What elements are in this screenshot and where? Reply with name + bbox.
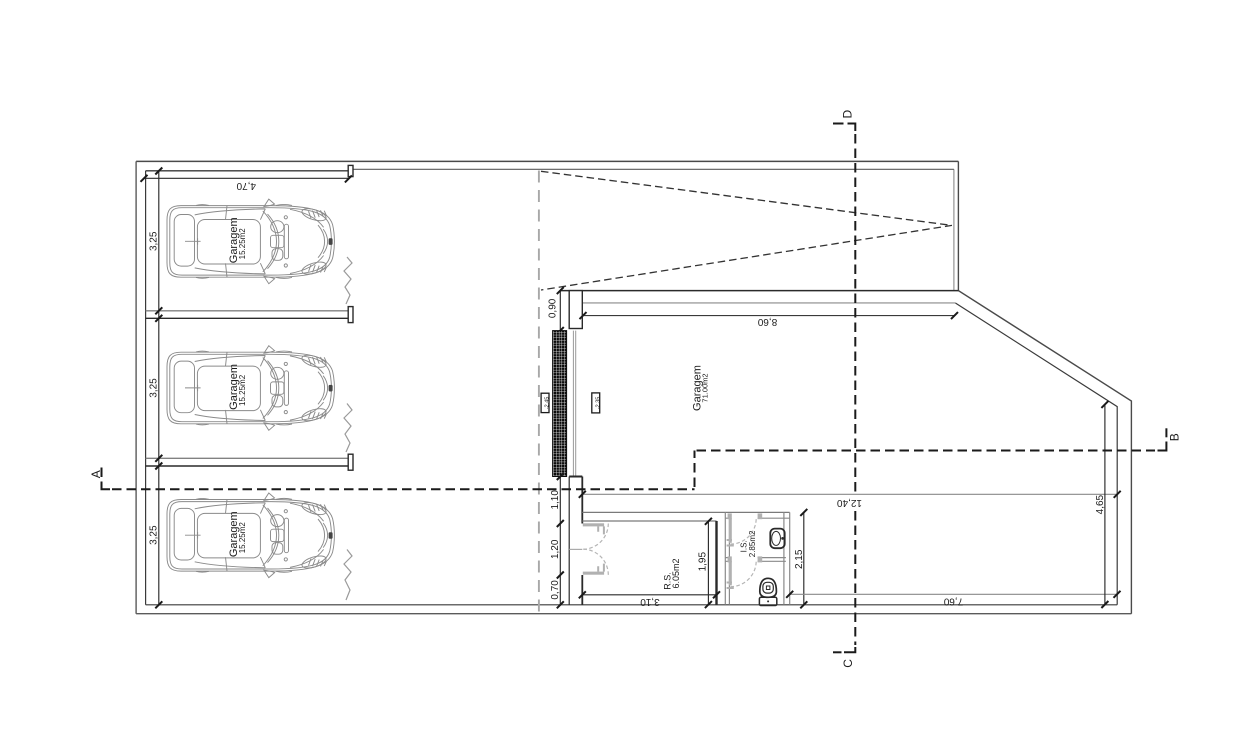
svg-text:7,60: 7,60 <box>943 595 963 606</box>
svg-text:3,25: 3,25 <box>149 378 160 398</box>
svg-text:1,95: 1,95 <box>698 552 709 572</box>
svg-text:2,15: 2,15 <box>794 549 805 569</box>
svg-text:A: A <box>89 470 103 478</box>
svg-text:C: C <box>841 659 855 668</box>
svg-text:6.05m2: 6.05m2 <box>671 558 681 588</box>
svg-text:15.25m2: 15.25m2 <box>238 374 247 406</box>
svg-text:0,90: 0,90 <box>547 298 558 318</box>
svg-text:0,70: 0,70 <box>550 580 561 600</box>
svg-text:B: B <box>1168 433 1182 441</box>
svg-text:1,20: 1,20 <box>550 539 561 559</box>
svg-text:15.25m2: 15.25m2 <box>238 522 247 554</box>
svg-text:1,10: 1,10 <box>550 490 561 510</box>
svg-text:3,10: 3,10 <box>640 596 660 607</box>
svg-text:4,65: 4,65 <box>1095 494 1106 514</box>
svg-text:3,25: 3,25 <box>149 231 160 251</box>
svg-text:-2.35: -2.35 <box>595 397 601 410</box>
svg-text:71.00m2: 71.00m2 <box>701 373 710 402</box>
svg-text:4,70: 4,70 <box>236 180 256 191</box>
svg-text:15.25m2: 15.25m2 <box>238 228 247 260</box>
svg-text:3,25: 3,25 <box>149 525 160 545</box>
svg-text:D: D <box>840 109 854 118</box>
svg-text:2.85m2: 2.85m2 <box>748 530 757 557</box>
svg-text:-2.45: -2.45 <box>545 397 551 410</box>
svg-text:12,40: 12,40 <box>837 497 862 508</box>
svg-text:8,60: 8,60 <box>757 316 777 327</box>
